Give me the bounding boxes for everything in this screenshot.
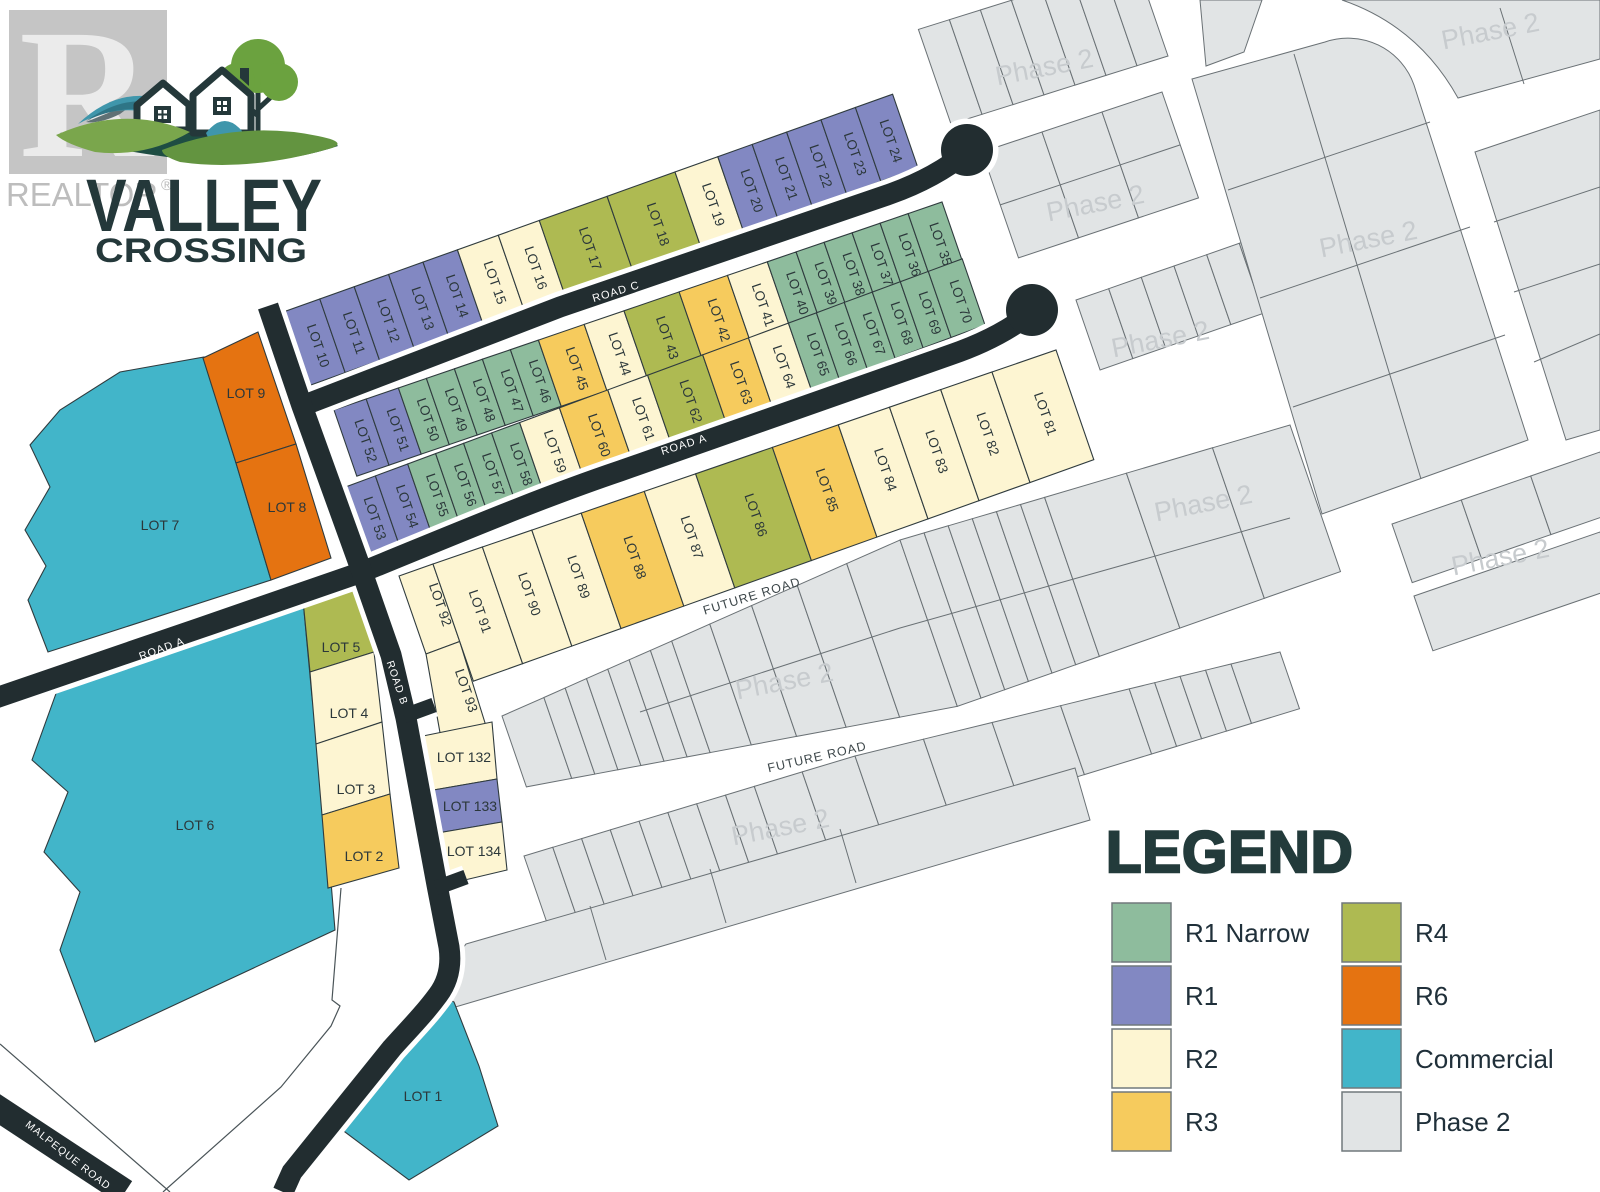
svg-text:LOT 133: LOT 133 (443, 798, 497, 814)
svg-text:R6: R6 (1415, 981, 1448, 1011)
svg-text:LOT 132: LOT 132 (437, 749, 491, 765)
svg-text:R3: R3 (1185, 1107, 1218, 1137)
svg-text:LOT 9: LOT 9 (227, 385, 266, 401)
svg-text:Phase 2: Phase 2 (1415, 1107, 1510, 1137)
svg-text:LOT 8: LOT 8 (268, 499, 307, 515)
svg-text:LOT 2: LOT 2 (345, 848, 384, 864)
svg-text:LOT 6: LOT 6 (176, 817, 215, 833)
svg-text:R2: R2 (1185, 1044, 1218, 1074)
svg-text:LOT 7: LOT 7 (141, 517, 180, 533)
svg-text:LOT 1: LOT 1 (404, 1088, 443, 1104)
svg-text:Commercial: Commercial (1415, 1044, 1554, 1074)
svg-text:R1: R1 (1185, 981, 1218, 1011)
svg-text:LOT 3: LOT 3 (337, 781, 376, 797)
svg-text:LOT 5: LOT 5 (322, 639, 361, 655)
svg-text:R4: R4 (1415, 918, 1448, 948)
svg-text:R1 Narrow: R1 Narrow (1185, 918, 1309, 948)
svg-text:LOT 134: LOT 134 (447, 843, 501, 859)
svg-text:LOT 4: LOT 4 (330, 705, 369, 721)
svg-text:CROSSING: CROSSING (95, 232, 307, 270)
svg-text:LEGEND: LEGEND (1106, 820, 1354, 885)
